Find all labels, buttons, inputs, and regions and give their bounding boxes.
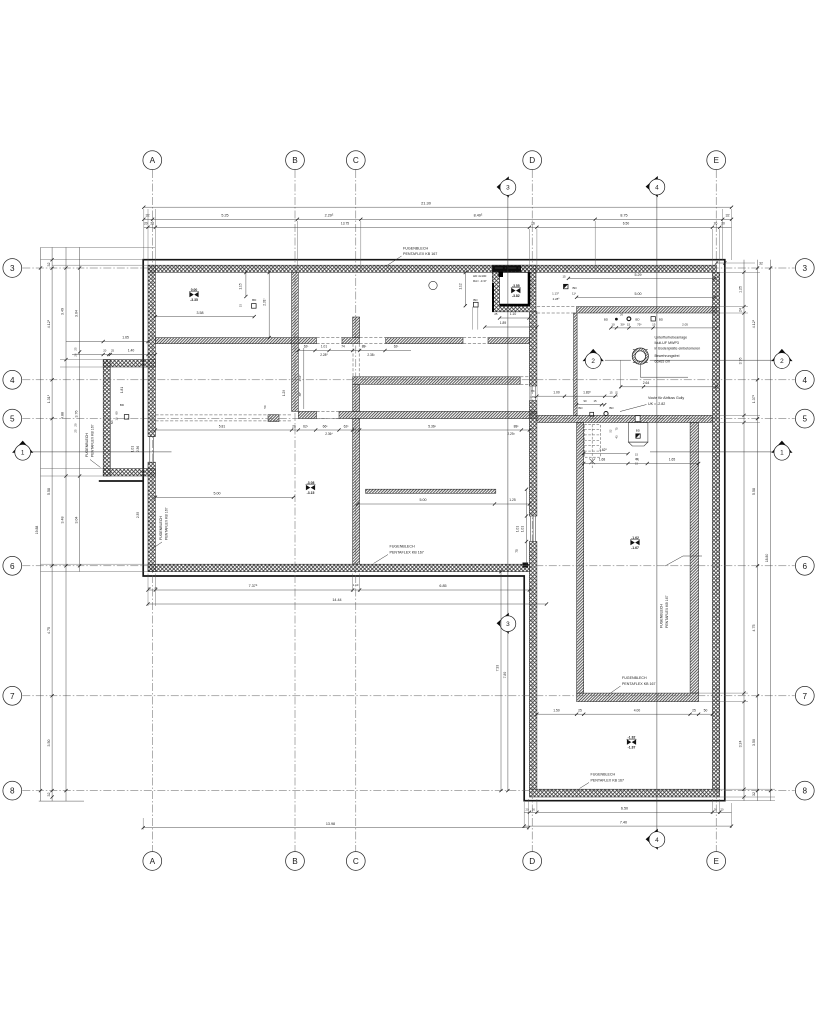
svg-text:-3.82: -3.82 bbox=[512, 294, 520, 298]
svg-text:FUGENBLECH: FUGENBLECH bbox=[591, 773, 616, 777]
svg-text:13.98: 13.98 bbox=[326, 822, 335, 826]
svg-text:2.64⁵: 2.64⁵ bbox=[298, 374, 302, 382]
svg-text:1.81: 1.81 bbox=[120, 387, 124, 393]
svg-text:59: 59 bbox=[263, 405, 267, 409]
svg-text:4.12⁵: 4.12⁵ bbox=[47, 319, 51, 328]
svg-text:2.28⁵: 2.28⁵ bbox=[553, 297, 561, 301]
svg-text:75: 75 bbox=[515, 549, 519, 553]
svg-text:PENTAFLEX KB 167: PENTAFLEX KB 167 bbox=[591, 778, 625, 782]
svg-text:1.40: 1.40 bbox=[128, 349, 135, 353]
svg-text:2.64: 2.64 bbox=[643, 381, 650, 385]
svg-text:-3.15: -3.15 bbox=[307, 491, 315, 495]
svg-text:15: 15 bbox=[609, 390, 613, 394]
svg-text:8: 8 bbox=[803, 787, 808, 796]
svg-text:8.49⁵: 8.49⁵ bbox=[474, 213, 483, 217]
svg-text:50: 50 bbox=[704, 708, 708, 712]
svg-text:1.65: 1.65 bbox=[122, 336, 129, 340]
svg-text:32: 32 bbox=[752, 792, 756, 796]
svg-text:11¹: 11¹ bbox=[572, 292, 576, 296]
svg-text:2.31⁵: 2.31⁵ bbox=[263, 298, 267, 306]
svg-text:2.38¹: 2.38¹ bbox=[367, 353, 374, 357]
svg-text:1.00: 1.00 bbox=[553, 390, 560, 394]
svg-text:8: 8 bbox=[10, 787, 15, 796]
svg-text:65x65 cm: 65x65 cm bbox=[655, 359, 671, 363]
svg-text:32: 32 bbox=[725, 213, 729, 217]
svg-text:25: 25 bbox=[74, 429, 78, 433]
svg-text:1.31⁵: 1.31⁵ bbox=[47, 394, 51, 403]
svg-text:Voute für Abfluss Gully: Voute für Abfluss Gully bbox=[648, 396, 684, 400]
svg-text:Muli-UF MWP3: Muli-UF MWP3 bbox=[655, 341, 679, 345]
svg-text:4.75: 4.75 bbox=[752, 625, 756, 632]
svg-text:25: 25 bbox=[578, 708, 582, 712]
svg-text:1.65: 1.65 bbox=[669, 458, 676, 462]
svg-text:2.36⁴: 2.36⁴ bbox=[325, 432, 333, 436]
svg-text:3.49: 3.49 bbox=[61, 308, 65, 315]
svg-text:FUGENBLECH: FUGENBLECH bbox=[85, 433, 89, 457]
svg-text:4.88: 4.88 bbox=[61, 412, 65, 419]
svg-text:6.50: 6.50 bbox=[621, 807, 628, 811]
svg-text:1.50: 1.50 bbox=[553, 708, 560, 712]
svg-text:15: 15 bbox=[238, 304, 242, 308]
svg-text:32: 32 bbox=[759, 262, 763, 266]
svg-text:2.35: 2.35 bbox=[136, 512, 140, 518]
svg-text:6: 6 bbox=[10, 562, 15, 571]
svg-text:PENTAFLEX KB 167: PENTAFLEX KB 167 bbox=[91, 424, 95, 457]
svg-text:26: 26 bbox=[150, 222, 154, 226]
svg-text:1.01: 1.01 bbox=[321, 345, 327, 349]
svg-text:3.04: 3.04 bbox=[74, 517, 78, 524]
svg-text:3: 3 bbox=[803, 264, 808, 273]
svg-text:PENTAFLEX KB 167: PENTAFLEX KB 167 bbox=[622, 682, 656, 686]
svg-text:3.24: 3.24 bbox=[739, 741, 743, 748]
svg-text:7.80: 7.80 bbox=[503, 672, 507, 679]
svg-text:-1.82: -1.82 bbox=[628, 736, 636, 740]
svg-text:5.00: 5.00 bbox=[420, 498, 427, 502]
svg-text:RA= -3.37: RA= -3.37 bbox=[473, 279, 487, 283]
svg-text:6.85: 6.85 bbox=[439, 584, 446, 588]
svg-text:in Bodenplatte einbetonieren: in Bodenplatte einbetonieren bbox=[655, 347, 701, 351]
svg-text:4: 4 bbox=[10, 376, 15, 385]
svg-text:3.76: 3.76 bbox=[74, 411, 78, 418]
svg-text:7.37⁵: 7.37⁵ bbox=[249, 584, 258, 588]
svg-text:1: 1 bbox=[21, 450, 25, 457]
svg-text:32: 32 bbox=[47, 263, 51, 267]
svg-text:4: 4 bbox=[655, 184, 659, 191]
svg-text:C: C bbox=[353, 156, 359, 165]
svg-text:FUGENBLECH: FUGENBLECH bbox=[660, 604, 664, 628]
svg-text:5.58: 5.58 bbox=[47, 488, 51, 495]
svg-text:32: 32 bbox=[145, 213, 149, 217]
svg-text:-3.35: -3.35 bbox=[190, 298, 198, 302]
svg-text:5.58: 5.58 bbox=[752, 488, 756, 495]
svg-text:B: B bbox=[292, 857, 298, 866]
svg-text:1.68: 1.68 bbox=[599, 458, 606, 462]
svg-text:15: 15 bbox=[115, 417, 119, 420]
svg-text:19.88: 19.88 bbox=[35, 526, 39, 535]
svg-text:FUGENBLECH: FUGENBLECH bbox=[390, 545, 416, 549]
svg-text:3.48: 3.48 bbox=[61, 517, 65, 524]
svg-text:4.12⁵: 4.12⁵ bbox=[752, 319, 756, 328]
svg-text:2.29⁵: 2.29⁵ bbox=[325, 213, 334, 217]
svg-text:26: 26 bbox=[292, 424, 296, 428]
svg-text:-1.67: -1.67 bbox=[631, 546, 639, 550]
svg-text:43: 43 bbox=[615, 435, 619, 438]
svg-text:A: A bbox=[150, 156, 156, 165]
svg-text:PENTAFLEX KB 167: PENTAFLEX KB 167 bbox=[403, 252, 437, 256]
svg-text:14.44: 14.44 bbox=[332, 598, 341, 602]
svg-text:1.15: 1.15 bbox=[239, 283, 243, 289]
svg-text:70: 70 bbox=[636, 458, 640, 462]
svg-text:8.75: 8.75 bbox=[620, 213, 627, 217]
svg-text:3.50: 3.50 bbox=[47, 740, 51, 747]
svg-text:30¹: 30¹ bbox=[620, 322, 624, 326]
svg-text:20: 20 bbox=[103, 349, 107, 353]
svg-text:UK = -2.82: UK = -2.82 bbox=[648, 402, 665, 406]
svg-text:5: 5 bbox=[10, 415, 15, 424]
svg-text:2.28⁵: 2.28⁵ bbox=[320, 353, 328, 357]
svg-text:4: 4 bbox=[655, 837, 659, 844]
svg-text:E: E bbox=[713, 156, 719, 165]
svg-text:1.01: 1.01 bbox=[131, 446, 135, 452]
svg-text:24: 24 bbox=[739, 308, 743, 312]
svg-text:1.25: 1.25 bbox=[739, 286, 743, 293]
svg-text:26: 26 bbox=[74, 353, 78, 357]
svg-text:10: 10 bbox=[611, 322, 615, 326]
svg-text:26: 26 bbox=[714, 222, 718, 226]
svg-text:A: A bbox=[150, 857, 156, 866]
svg-text:21.30: 21.30 bbox=[421, 200, 432, 205]
svg-text:HD 4x100: HD 4x100 bbox=[473, 274, 487, 278]
svg-text:6: 6 bbox=[803, 562, 808, 571]
svg-text:20: 20 bbox=[721, 222, 725, 226]
svg-text:2: 2 bbox=[591, 358, 595, 365]
svg-text:65¹: 65¹ bbox=[531, 390, 535, 393]
svg-text:1.12: 1.12 bbox=[459, 283, 463, 289]
svg-text:25: 25 bbox=[494, 312, 498, 316]
svg-text:7.40: 7.40 bbox=[620, 820, 627, 824]
svg-text:1.10: 1.10 bbox=[353, 583, 359, 587]
svg-text:25: 25 bbox=[111, 349, 115, 353]
svg-text:5.29: 5.29 bbox=[635, 273, 642, 277]
svg-text:62¹: 62¹ bbox=[394, 345, 399, 349]
svg-text:1.25: 1.25 bbox=[509, 498, 516, 502]
svg-text:2.05: 2.05 bbox=[682, 322, 688, 326]
svg-text:1.10: 1.10 bbox=[510, 312, 517, 316]
svg-text:15: 15 bbox=[627, 322, 631, 326]
svg-text:26: 26 bbox=[531, 222, 535, 226]
svg-text:3: 3 bbox=[506, 621, 510, 628]
svg-text:3: 3 bbox=[506, 185, 510, 192]
svg-text:D: D bbox=[529, 156, 535, 165]
svg-text:-1.62: -1.62 bbox=[631, 536, 639, 540]
svg-text:PENTAFLEX KB 167: PENTAFLEX KB 167 bbox=[390, 550, 424, 554]
svg-text:90: 90 bbox=[583, 399, 587, 403]
svg-text:3.76: 3.76 bbox=[739, 358, 743, 365]
svg-text:5.36²: 5.36² bbox=[428, 424, 436, 428]
svg-text:32: 32 bbox=[47, 793, 51, 797]
svg-text:4.75: 4.75 bbox=[47, 627, 51, 634]
svg-text:5: 5 bbox=[803, 415, 808, 424]
svg-text:20: 20 bbox=[144, 222, 148, 226]
svg-text:Unterflurhebeanlage: Unterflurhebeanlage bbox=[655, 335, 688, 339]
svg-text:1.89: 1.89 bbox=[500, 321, 507, 325]
svg-text:7: 7 bbox=[10, 692, 15, 701]
svg-text:4.00: 4.00 bbox=[634, 708, 641, 712]
svg-text:6.50: 6.50 bbox=[623, 222, 630, 226]
svg-text:4: 4 bbox=[803, 376, 808, 385]
svg-text:75: 75 bbox=[615, 427, 619, 430]
svg-text:PENTAFLEX KB 167: PENTAFLEX KB 167 bbox=[665, 595, 669, 628]
svg-text:15: 15 bbox=[562, 274, 566, 278]
svg-text:0.00: 0.00 bbox=[191, 288, 198, 292]
svg-text:20: 20 bbox=[74, 423, 78, 427]
svg-text:25: 25 bbox=[74, 347, 78, 351]
svg-text:-3.08: -3.08 bbox=[307, 481, 315, 485]
svg-text:2: 2 bbox=[780, 358, 784, 365]
svg-text:3: 3 bbox=[10, 264, 15, 273]
svg-text:5.00: 5.00 bbox=[214, 492, 221, 496]
svg-text:1.62⁵: 1.62⁵ bbox=[599, 448, 607, 452]
svg-text:PENTAFLEX KB 167: PENTAFLEX KB 167 bbox=[164, 507, 168, 540]
svg-text:62¹: 62¹ bbox=[304, 345, 309, 349]
svg-text:3.58: 3.58 bbox=[197, 311, 204, 315]
svg-text:3.04: 3.04 bbox=[74, 310, 78, 317]
svg-text:1: 1 bbox=[780, 450, 784, 457]
svg-text:5.81: 5.81 bbox=[219, 424, 226, 428]
svg-text:52⁵: 52⁵ bbox=[110, 420, 114, 424]
svg-text:13.75: 13.75 bbox=[341, 222, 349, 226]
svg-text:1.37⁵: 1.37⁵ bbox=[752, 394, 756, 403]
svg-text:88¹: 88¹ bbox=[362, 345, 367, 349]
svg-text:Bewehrungsfrei: Bewehrungsfrei bbox=[655, 354, 680, 358]
svg-text:1.29: 1.29 bbox=[282, 390, 286, 396]
svg-text:5.25: 5.25 bbox=[221, 213, 228, 217]
svg-text:D: D bbox=[529, 857, 535, 866]
svg-text:15: 15 bbox=[593, 399, 597, 403]
svg-text:FUGENBLECH: FUGENBLECH bbox=[403, 246, 429, 250]
svg-text:E: E bbox=[713, 857, 719, 866]
svg-text:75¹: 75¹ bbox=[637, 322, 641, 326]
svg-text:7.93: 7.93 bbox=[496, 665, 500, 672]
svg-text:1.13⁵: 1.13⁵ bbox=[552, 292, 560, 296]
svg-text:C: C bbox=[353, 857, 359, 866]
svg-text:15: 15 bbox=[652, 322, 656, 326]
svg-text:-3.55: -3.55 bbox=[512, 284, 520, 288]
svg-text:25: 25 bbox=[692, 708, 696, 712]
svg-text:1.01: 1.01 bbox=[521, 526, 525, 532]
svg-text:2.29²: 2.29² bbox=[507, 432, 514, 436]
svg-text:1.83⁵: 1.83⁵ bbox=[583, 390, 591, 394]
svg-text:60: 60 bbox=[115, 411, 119, 414]
svg-text:2.36: 2.36 bbox=[136, 446, 140, 452]
svg-text:B: B bbox=[292, 156, 298, 165]
svg-text:1.01: 1.01 bbox=[516, 526, 520, 532]
svg-text:7: 7 bbox=[803, 692, 808, 701]
svg-text:-1.87: -1.87 bbox=[628, 746, 636, 750]
svg-text:18.80: 18.80 bbox=[765, 554, 769, 563]
svg-text:3.50: 3.50 bbox=[752, 739, 756, 746]
svg-text:FUGENBLECH: FUGENBLECH bbox=[159, 516, 163, 540]
svg-text:FUGENBLECH: FUGENBLECH bbox=[622, 676, 647, 680]
svg-text:74: 74 bbox=[341, 345, 345, 349]
svg-text:5.00: 5.00 bbox=[635, 292, 642, 296]
